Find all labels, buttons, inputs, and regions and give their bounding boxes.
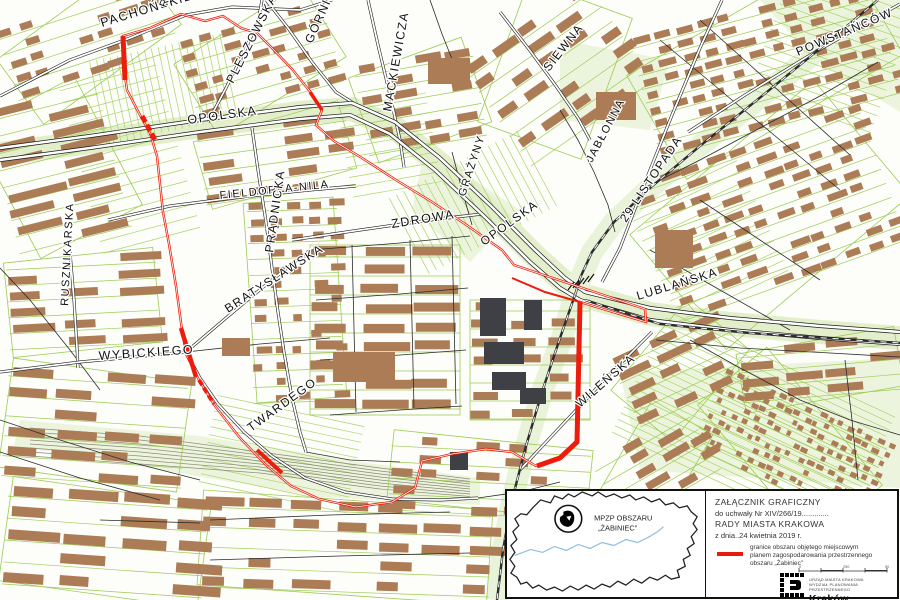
logo-org-text: URZĄD MIASTA KRAKOWA WYDZIAŁ PLANOWANIA … bbox=[809, 577, 897, 592]
city-logo-row: URZĄD MIASTA KRAKOWA WYDZIAŁ PLANOWANIA … bbox=[780, 573, 897, 600]
street-label: WYBICKIEGO bbox=[98, 342, 194, 363]
plan-area-marker bbox=[555, 505, 582, 532]
legend-inset-map: MPZP OBSZARU„ŻABINIEC” bbox=[507, 491, 705, 597]
legend-title: ZAŁĄCZNIK GRAFICZNY bbox=[715, 497, 889, 508]
krakow-outline-inset: MPZP OBSZARU„ŻABINIEC” bbox=[507, 491, 705, 597]
scale-label: 0 bbox=[799, 565, 801, 569]
legend-box: MPZP OBSZARU„ŻABINIEC” ZAŁĄCZNIK GRAFICZ… bbox=[505, 489, 899, 599]
legend-resolution-number: do uchwały Nr XIV/266/19............. bbox=[715, 508, 889, 519]
legend-panel: ZAŁĄCZNIK GRAFICZNY do uchwały Nr XIV/26… bbox=[705, 491, 897, 597]
legend-date: z dnia..24 kwietnia 2019 r. bbox=[715, 530, 889, 541]
inset-label: MPZP OBSZARU bbox=[594, 514, 652, 523]
scale-label: 500 bbox=[885, 565, 889, 569]
legend-council: RADY MIASTA KRAKOWA bbox=[715, 519, 889, 530]
krakow-logo-icon bbox=[780, 573, 804, 597]
logo-city-name: Kraków bbox=[809, 593, 897, 600]
scale-label: 250 bbox=[843, 565, 849, 569]
scale-bar: 0250500 bbox=[797, 565, 889, 573]
boundary-line-swatch bbox=[717, 552, 743, 556]
inset-label: „ŻABINIEC” bbox=[598, 524, 638, 533]
map-window: PACHOŃSKIEGOROPOLSKAPLESZOWSKAGÓRNICKIEG… bbox=[0, 0, 900, 600]
